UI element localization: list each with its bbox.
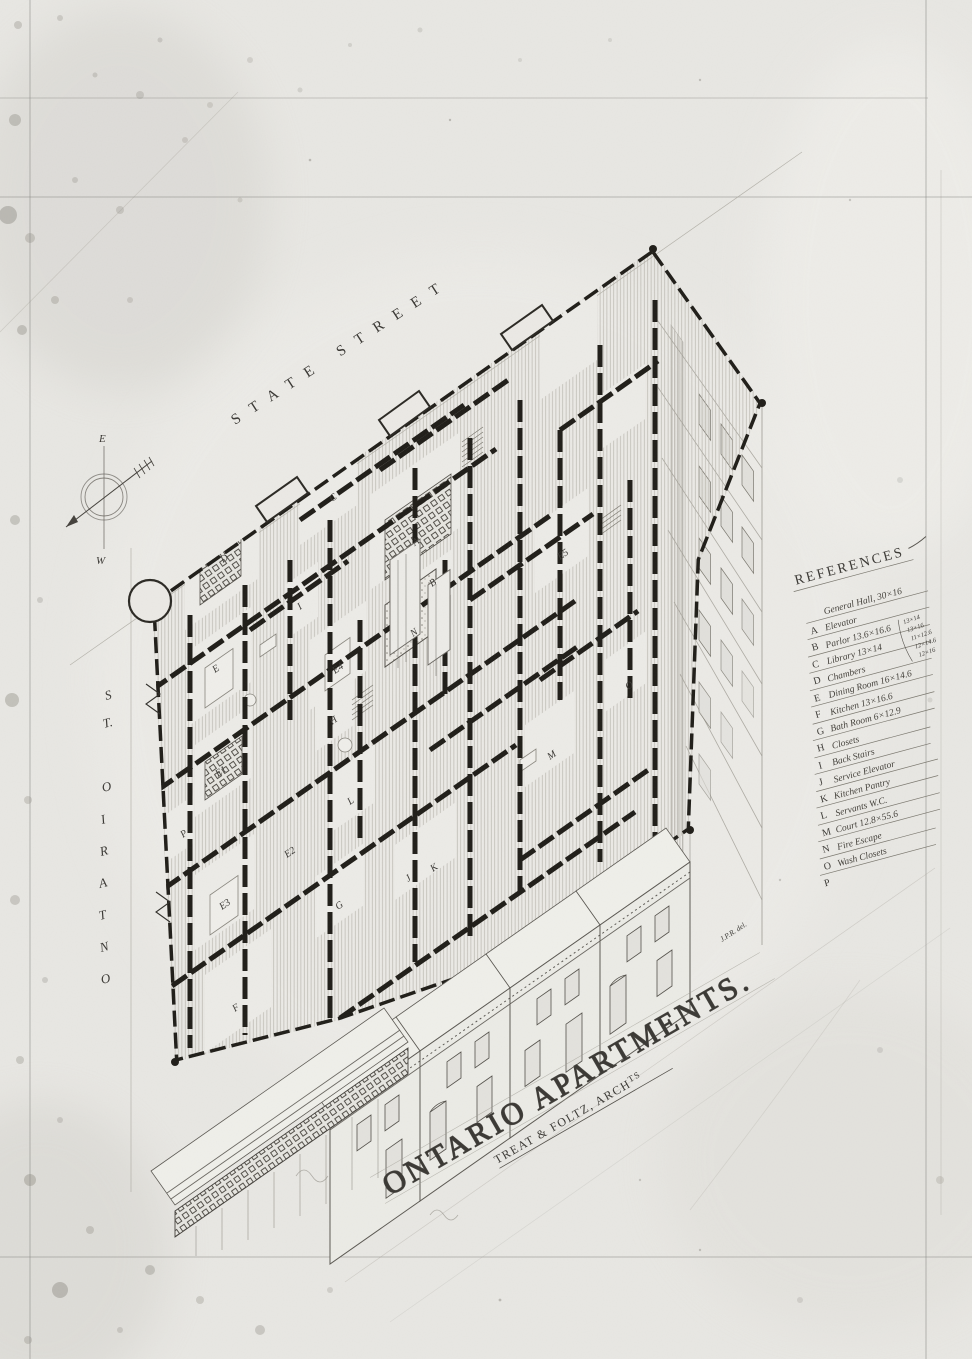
drawing-sheet-svg: STATE STREET S T. O I R A T N O E W <box>0 0 972 1359</box>
paper-grain-overlay <box>0 0 972 1359</box>
drawing-sheet: STATE STREET S T. O I R A T N O E W <box>0 0 972 1359</box>
